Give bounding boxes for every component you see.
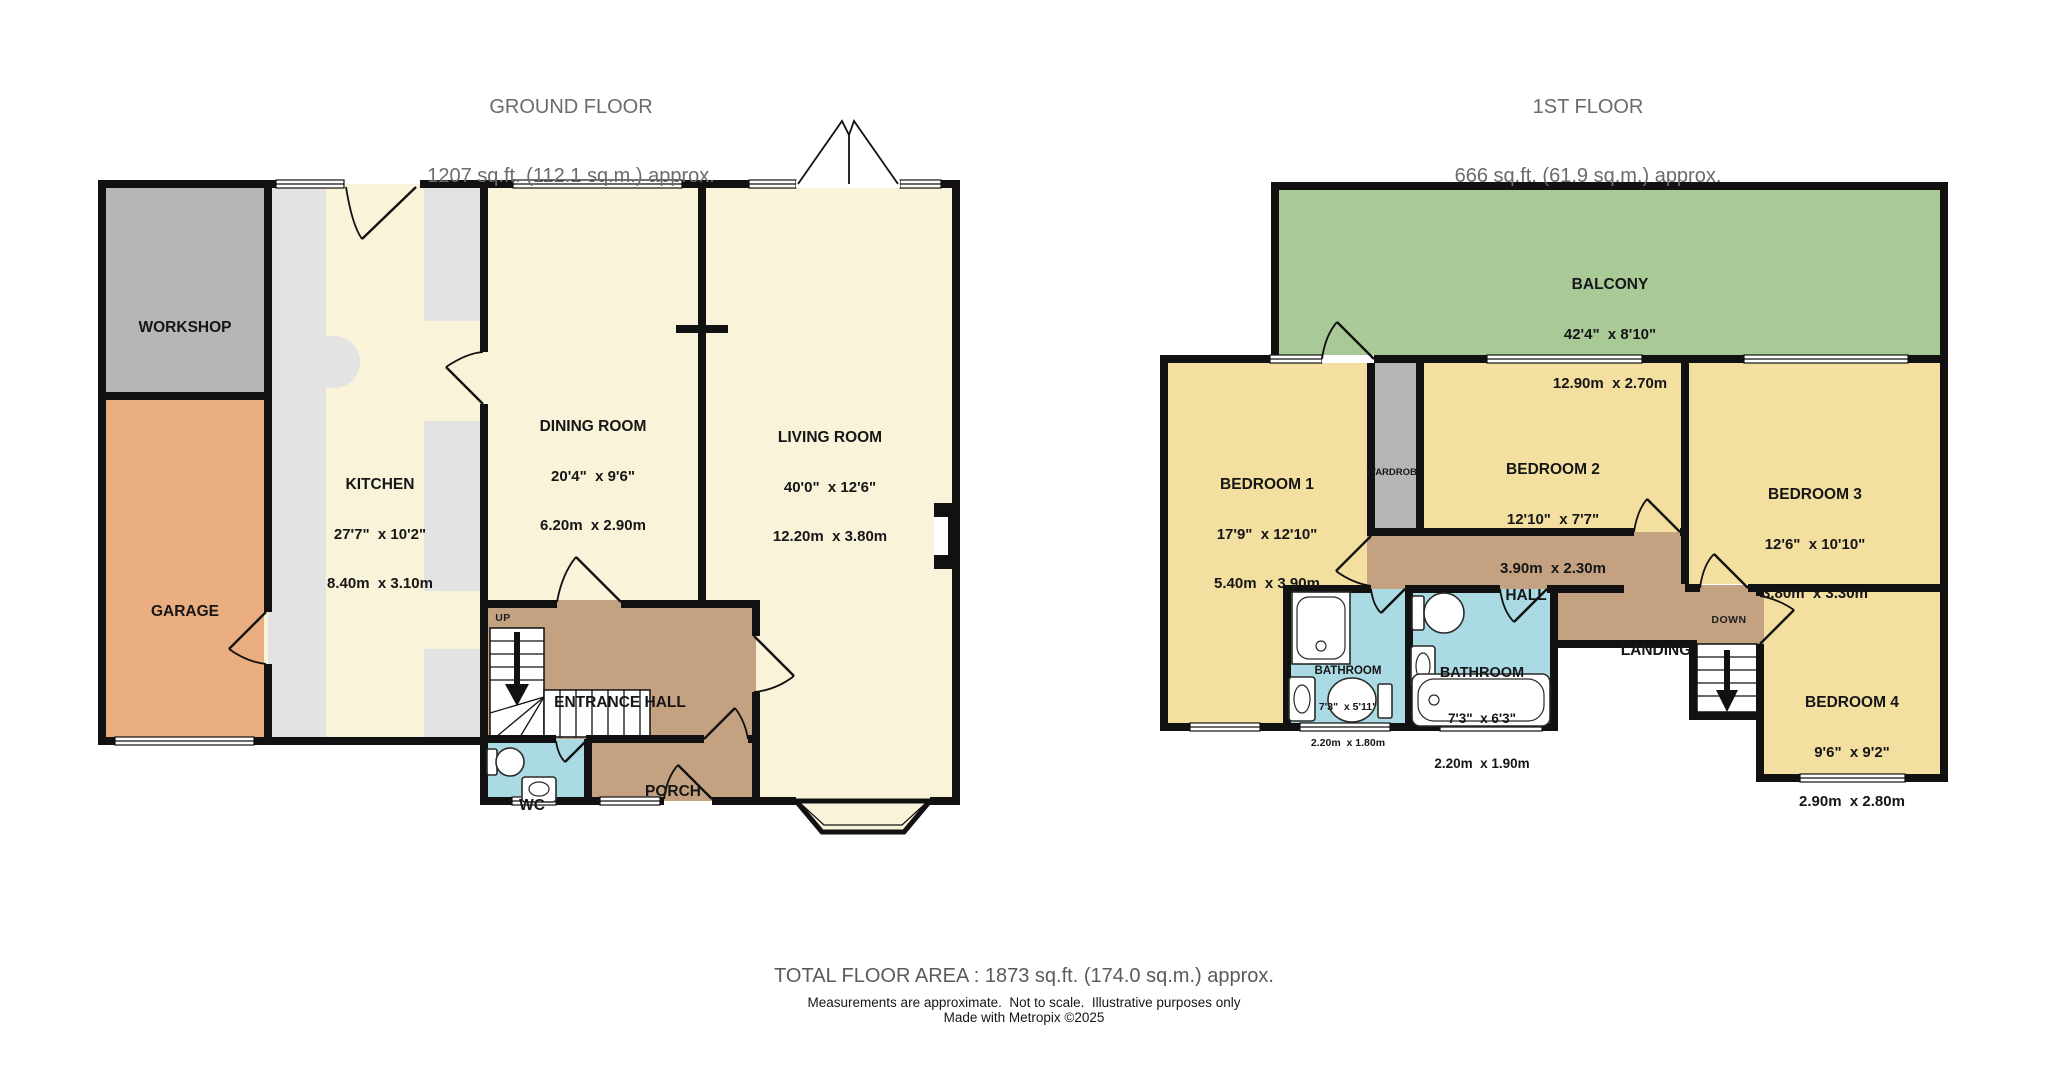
toilet-icon: [1412, 596, 1424, 630]
floorplan-canvas: [0, 0, 2048, 1090]
french-doors-icon: [798, 121, 898, 184]
label-garage: GARAGE: [151, 571, 219, 637]
label-living-room: LIVING ROOM 40'0" x 12'6" 12.20m x 3.80m: [773, 397, 887, 562]
floorplan-page: GROUND FLOOR 1207 sq.ft. (112.1 sq.m.) a…: [0, 0, 2048, 1090]
disclaimer-text: Measurements are approximate. Not to sca…: [808, 995, 1241, 1010]
label-workshop: WORKSHOP: [139, 287, 232, 353]
label-down: DOWN: [1711, 614, 1746, 626]
label-balcony: BALCONY 42'4" x 8'10" 12.90m x 2.70m: [1553, 244, 1667, 409]
first-floor-area-text: 666 sq.ft. (61.9 sq.m.) approx.: [1455, 165, 1722, 188]
first-floor-title-text: 1ST FLOOR: [1455, 96, 1722, 119]
credit-text: Made with Metropix ©2025: [944, 1010, 1105, 1025]
garage-room: [102, 392, 264, 741]
label-kitchen: KITCHEN 27'7" x 10'2" 8.40m x 3.10m: [327, 444, 433, 609]
label-bedroom1: BEDROOM 1 17'9" x 12'10" 5.40m x 3.90m: [1214, 444, 1320, 609]
label-hall: HALL: [1505, 555, 1546, 621]
label-bathroom2: BATHROOM 7'3" x 6'3" 2.20m x 1.90m: [1434, 636, 1529, 786]
label-bedroom3: BEDROOM 3 12'6" x 10'10" 3.80m x 3.30m: [1762, 454, 1868, 619]
label-entrance-hall: ENTRANCE HALL: [554, 662, 686, 728]
first-floor-title: 1ST FLOOR 666 sq.ft. (61.9 sq.m.) approx…: [1455, 50, 1722, 211]
label-bedroom4: BEDROOM 4 9'6" x 9'2" 2.90m x 2.80m: [1799, 662, 1905, 827]
ground-floor-title-text: GROUND FLOOR: [427, 96, 715, 119]
first-floor-stairs: [1697, 644, 1757, 712]
label-wc: WC: [519, 765, 545, 831]
label-landing: LANDING: [1621, 610, 1692, 676]
label-porch: PORCH: [645, 751, 701, 817]
fireplace: [934, 503, 956, 569]
ground-floor-title: GROUND FLOOR 1207 sq.ft. (112.1 sq.m.) a…: [427, 50, 715, 211]
total-floor-area: TOTAL FLOOR AREA : 1873 sq.ft. (174.0 sq…: [774, 965, 1274, 988]
label-dining-room: DINING ROOM 20'4" x 9'6" 6.20m x 2.90m: [540, 386, 647, 551]
label-bathroom1: BATHROOM 7'3" x 5'11" 2.20m x 1.80m: [1311, 641, 1385, 761]
label-up: UP: [495, 612, 511, 624]
ground-floor-area-text: 1207 sq.ft. (112.1 sq.m.) approx.: [427, 165, 715, 188]
label-wardrobe: WARDROBE: [1367, 445, 1423, 489]
bay-window: [796, 801, 930, 832]
